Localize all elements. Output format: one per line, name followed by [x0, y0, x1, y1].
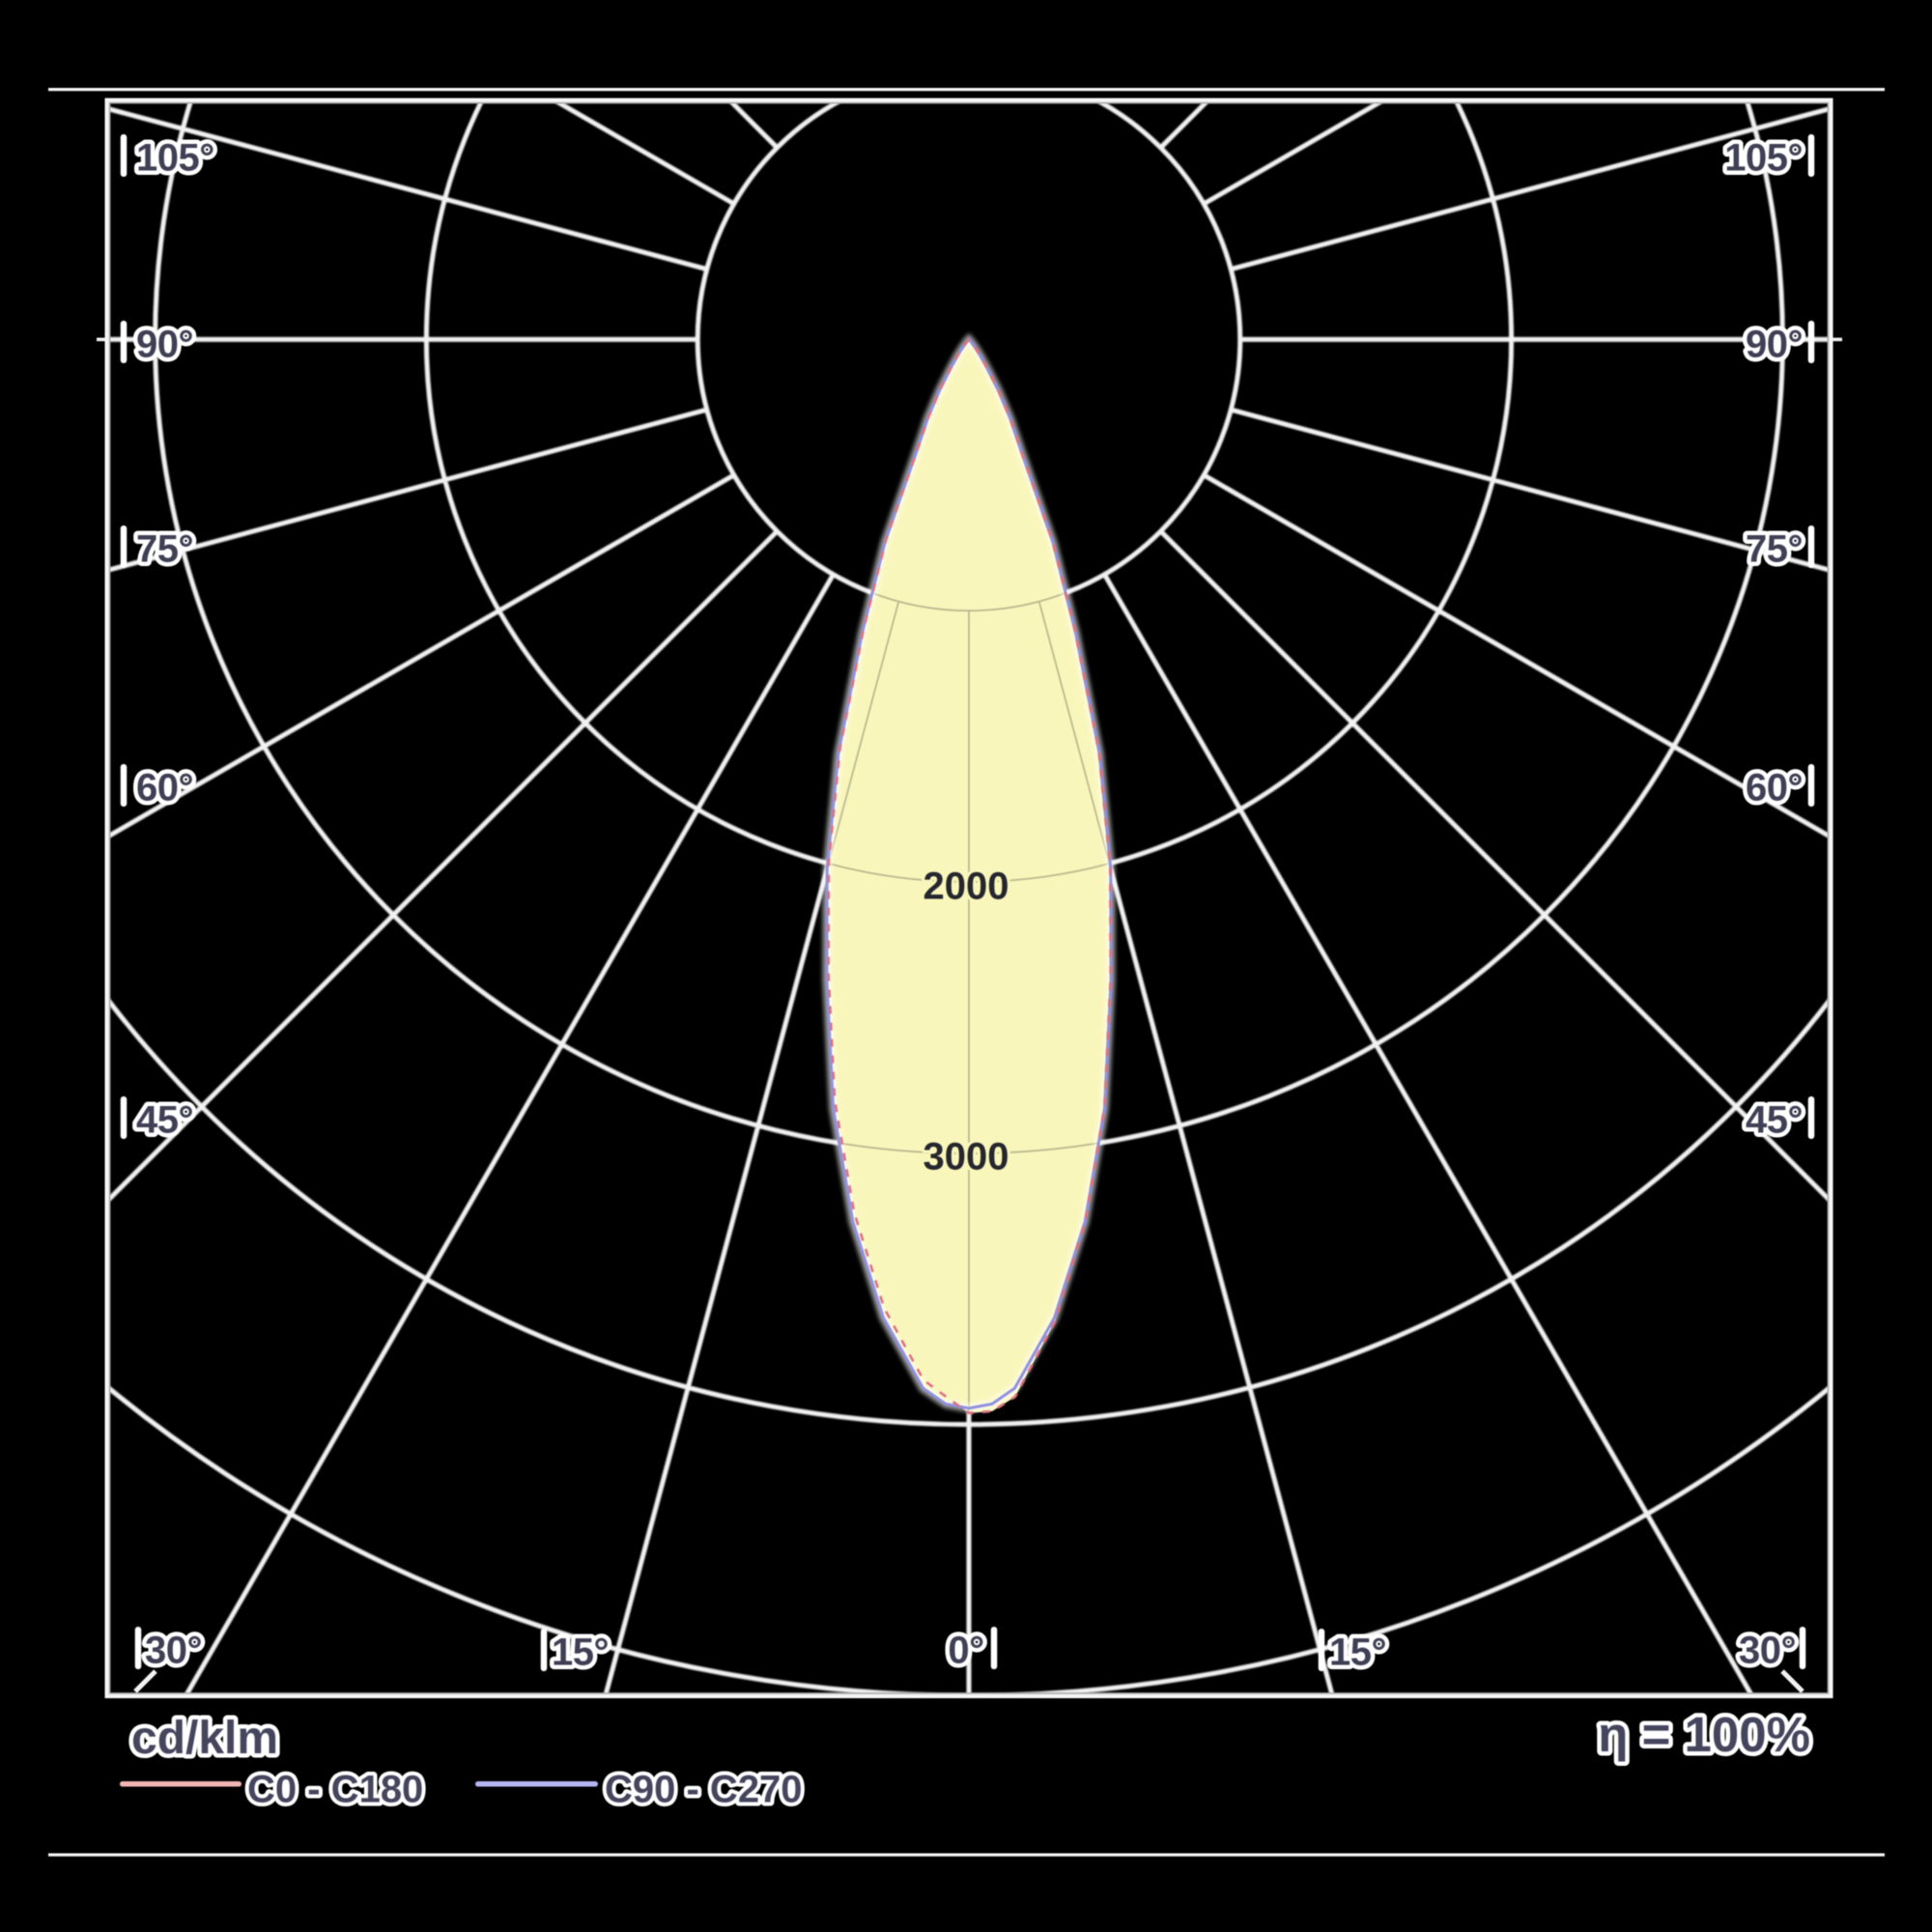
svg-text:η = 100%: η = 100% [1598, 1707, 1810, 1762]
svg-text:cd/klm: cd/klm [131, 1713, 278, 1764]
svg-text:45°: 45° [1746, 1098, 1803, 1141]
svg-text:C0 - C180: C0 - C180 [247, 1769, 423, 1811]
svg-text:0°: 0° [948, 1629, 983, 1671]
svg-text:30°: 30° [1739, 1629, 1796, 1671]
svg-text:60°: 60° [1746, 766, 1803, 809]
svg-text:15°: 15° [1329, 1631, 1386, 1673]
svg-text:75°: 75° [1746, 527, 1803, 570]
svg-text:C90 - C270: C90 - C270 [605, 1769, 803, 1811]
svg-text:90°: 90° [136, 323, 193, 365]
svg-text:45°: 45° [136, 1098, 193, 1141]
svg-text:2000: 2000 [923, 866, 1009, 908]
svg-text:3000: 3000 [923, 1136, 1009, 1179]
svg-text:105°: 105° [1724, 136, 1803, 179]
svg-text:90°: 90° [1746, 323, 1803, 365]
svg-text:105°: 105° [136, 136, 214, 179]
svg-text:30°: 30° [145, 1629, 202, 1671]
svg-text:60°: 60° [136, 766, 193, 809]
svg-text:15°: 15° [552, 1631, 609, 1673]
svg-text:75°: 75° [136, 527, 193, 570]
